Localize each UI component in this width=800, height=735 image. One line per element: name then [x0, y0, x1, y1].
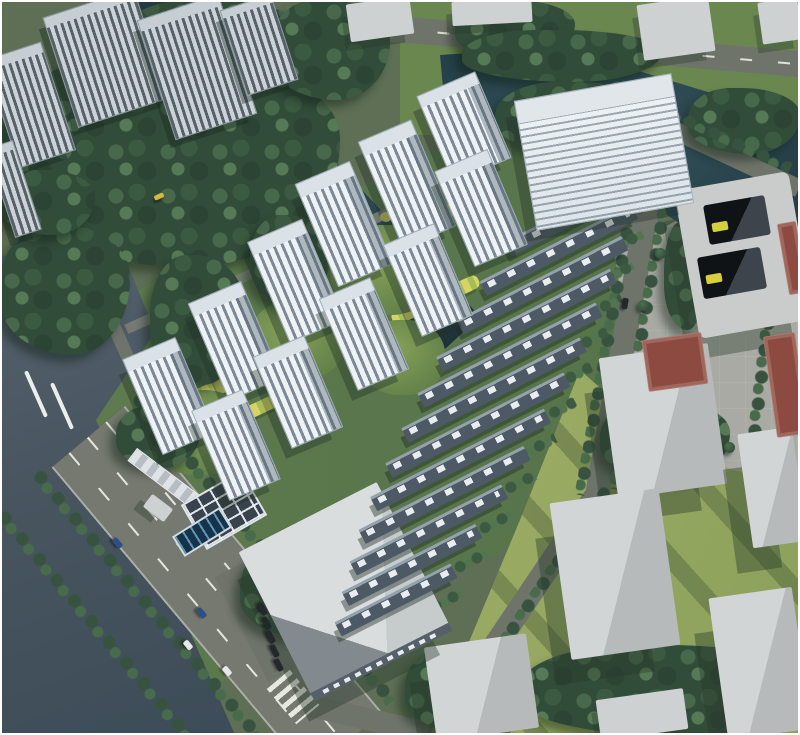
context-block-south-1 — [550, 488, 681, 660]
plaza-tree-1 — [655, 248, 666, 259]
basketball-court — [642, 332, 709, 392]
plaza-tree-3 — [638, 300, 649, 311]
forest-north-band — [462, 30, 662, 82]
forest-west-bank — [0, 225, 130, 355]
plaza-tree-6 — [724, 442, 735, 453]
context-block-south-3 — [424, 633, 539, 735]
aerial-rendering-canvas — [0, 0, 800, 735]
context-slab-2 — [451, 0, 532, 26]
tower-slab-main — [514, 73, 694, 231]
context-block-north-2 — [757, 0, 800, 45]
context-block-north-1 — [636, 0, 715, 61]
